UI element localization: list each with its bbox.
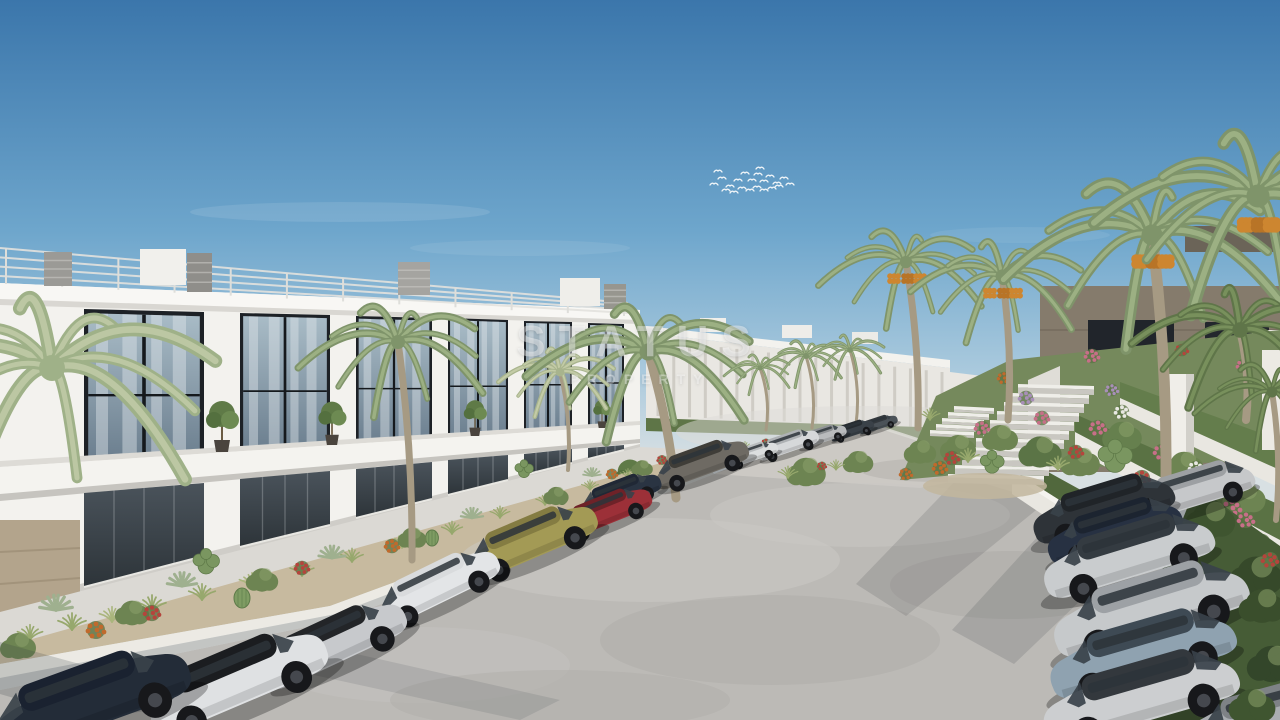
flower-bloom — [384, 545, 388, 549]
flower-bloom — [977, 431, 981, 435]
flower-bloom — [1154, 446, 1158, 450]
flower-bloom — [1120, 405, 1124, 409]
flower-bloom — [952, 460, 956, 464]
flower-bloom — [1194, 461, 1198, 465]
flower-bloom — [612, 476, 615, 479]
palm-crown — [1267, 387, 1278, 398]
flower-bloom — [910, 474, 913, 477]
flower-bloom — [1238, 508, 1243, 513]
tree-foliage — [206, 412, 222, 428]
flower-bloom — [1084, 355, 1088, 359]
flower-bloom — [1094, 352, 1098, 356]
bush-highlight — [1036, 436, 1053, 453]
flower-bloom — [1092, 431, 1096, 435]
flower-bloom — [1122, 414, 1126, 418]
flower-bloom — [1238, 514, 1242, 518]
flower-bloom — [157, 613, 161, 617]
flower-bloom — [614, 471, 617, 474]
flower-bloom — [1100, 423, 1104, 427]
flower-bloom — [99, 625, 104, 630]
bush-ball — [246, 575, 262, 591]
flower-bloom — [818, 463, 820, 465]
flower-bloom — [1034, 417, 1038, 421]
flower-bloom — [935, 471, 939, 475]
flower-bloom — [1247, 522, 1251, 526]
bush-highlight — [129, 601, 142, 614]
flower-bloom — [1248, 515, 1252, 519]
flower-bloom — [144, 607, 148, 611]
flower-bloom — [1261, 559, 1265, 563]
flower-bloom — [1089, 427, 1093, 431]
flower-bloom — [1018, 397, 1022, 401]
palm-crown — [1246, 184, 1269, 207]
flower-bloom — [1028, 394, 1032, 398]
palm-crown — [803, 353, 809, 359]
flower-bloom — [956, 458, 960, 462]
bush-ball — [904, 447, 920, 463]
prickly-pear-pad — [1108, 439, 1122, 453]
flower-bloom — [997, 377, 1000, 380]
flower-bloom — [1126, 412, 1130, 416]
curtain — [307, 318, 317, 443]
flower-bloom — [1037, 421, 1041, 425]
flower-bloom — [1111, 388, 1114, 391]
flower-bloom — [908, 470, 911, 473]
flower-bloom — [980, 421, 984, 425]
flower-bloom — [1092, 358, 1096, 362]
flower-bloom — [906, 476, 909, 479]
flower-bloom — [1153, 451, 1157, 455]
flower-bloom — [823, 463, 825, 465]
shape-rect — [560, 278, 600, 306]
bush-ball — [843, 457, 858, 472]
flower-bloom — [899, 473, 902, 476]
shape-ellipse — [600, 595, 940, 685]
flower-bloom — [1103, 428, 1107, 432]
flower-bloom — [396, 546, 400, 550]
flower-bloom — [1040, 411, 1044, 415]
flower-bloom — [1026, 400, 1030, 404]
flower-bloom — [940, 470, 944, 474]
flower-bloom — [951, 456, 955, 460]
flower-bloom — [662, 461, 665, 464]
flower-bloom — [762, 440, 764, 442]
flower-bloom — [900, 470, 903, 473]
flower-bloom — [387, 549, 391, 553]
flower-bloom — [944, 468, 948, 472]
flower-bloom — [1237, 361, 1241, 365]
flower-bloom — [825, 466, 827, 468]
flower-bloom — [94, 622, 99, 627]
date-fruit — [1165, 259, 1175, 269]
flower-bloom — [1262, 554, 1266, 558]
flower-bloom — [608, 476, 611, 479]
flower-bloom — [294, 567, 298, 571]
flower-bloom — [394, 542, 398, 546]
curtain — [454, 320, 460, 434]
flower-bloom — [661, 459, 664, 462]
date-fruit — [895, 278, 901, 284]
flower-bloom — [304, 564, 308, 568]
flower-bloom — [1186, 350, 1189, 353]
flower-bloom — [1182, 352, 1185, 355]
flower-bloom — [1024, 391, 1028, 395]
window — [240, 313, 330, 450]
flower-bloom — [1019, 393, 1023, 397]
bush-highlight — [917, 440, 930, 453]
flower-bloom — [1272, 555, 1276, 559]
bush-ball — [982, 432, 1000, 450]
flower-bloom — [300, 561, 304, 565]
flower-bloom — [1087, 359, 1091, 363]
bush-ball — [1018, 445, 1040, 467]
flower-bloom — [150, 605, 154, 609]
flower-bloom — [947, 461, 951, 465]
flower-bloom — [1264, 563, 1268, 567]
flower-bloom — [1091, 354, 1095, 358]
flower-bloom — [821, 462, 823, 464]
palm-crown — [847, 347, 853, 353]
curtain — [492, 322, 499, 432]
curtain — [249, 316, 258, 446]
curtain — [269, 317, 280, 445]
bush-highlight — [1248, 689, 1266, 707]
flower-bloom — [1085, 351, 1089, 355]
flower-bloom — [1096, 420, 1100, 424]
bush-highlight — [640, 460, 648, 468]
flower-bloom — [663, 457, 666, 460]
flower-bloom — [615, 474, 618, 477]
flower-bloom — [392, 548, 396, 552]
flower-bloom — [1003, 376, 1006, 379]
architectural-render: STATUS PROPERTY — [0, 0, 1280, 720]
flower-bloom — [1074, 445, 1078, 449]
flower-bloom — [1116, 390, 1119, 393]
flower-bloom — [391, 544, 395, 548]
flower-bloom — [611, 469, 614, 472]
flower-bloom — [1114, 411, 1118, 415]
flower-bloom — [95, 628, 100, 633]
flower-bloom — [902, 477, 905, 480]
flower-bloom — [1124, 408, 1128, 412]
flower-bloom — [151, 611, 155, 615]
flower-bloom — [1231, 506, 1236, 511]
flower-bloom — [302, 570, 306, 574]
flower-bloom — [656, 459, 659, 462]
flower-bloom — [1240, 523, 1244, 527]
palm-crown — [639, 343, 656, 360]
flower-bloom — [817, 465, 819, 467]
bush-highlight — [803, 458, 818, 473]
palm-crown — [757, 365, 762, 370]
flower-bloom — [933, 463, 937, 467]
bush-highlight — [1258, 589, 1276, 607]
flower-bloom — [1121, 410, 1125, 414]
flower-bloom — [1078, 448, 1082, 452]
bush-highlight — [15, 633, 29, 647]
shape-rect — [140, 249, 186, 285]
bush-highlight — [1119, 422, 1134, 437]
flower-bloom — [1275, 560, 1279, 564]
flower-bloom — [942, 464, 946, 468]
flower-bloom — [1189, 463, 1193, 467]
flower-bloom — [1021, 401, 1025, 405]
flower-bloom — [905, 472, 908, 475]
flower-bloom — [822, 467, 824, 469]
flower-bloom — [607, 470, 610, 473]
bush-highlight — [855, 451, 867, 463]
flower-bloom — [765, 439, 767, 441]
plant-pot — [325, 435, 339, 445]
flower-bloom — [1076, 454, 1080, 458]
tree-foliage — [464, 408, 475, 419]
flower-bloom — [661, 455, 664, 458]
flower-bloom — [1097, 426, 1101, 430]
tree-foliage — [593, 406, 602, 415]
palm-crown — [391, 335, 405, 349]
prickly-pear-pad — [520, 460, 528, 468]
flower-bloom — [1251, 520, 1255, 524]
flower-bloom — [1245, 518, 1249, 522]
plant-barrel — [234, 588, 250, 608]
shape-ellipse — [923, 473, 1047, 499]
flower-bloom — [1069, 447, 1073, 451]
flower-bloom — [944, 457, 948, 461]
prickly-pear-pad — [201, 549, 212, 560]
palm-crown — [900, 256, 912, 268]
flower-bloom — [606, 473, 609, 476]
bush-ball — [115, 607, 132, 624]
flower-bloom — [1112, 392, 1115, 395]
flower-bloom — [975, 423, 979, 427]
flower-bloom — [146, 616, 150, 620]
render-scene — [0, 0, 1280, 720]
flower-bloom — [1156, 455, 1160, 459]
flower-bloom — [981, 426, 985, 430]
flower-bloom — [1035, 413, 1039, 417]
flower-bloom — [998, 374, 1001, 377]
flower-bloom — [1237, 519, 1241, 523]
tree-foliage — [474, 407, 487, 420]
flower-bloom — [945, 453, 949, 457]
flower-bloom — [1115, 407, 1119, 411]
flower-bloom — [657, 456, 660, 459]
flower-bloom — [939, 466, 943, 470]
flower-bloom — [1090, 422, 1094, 426]
shape-ellipse — [190, 202, 490, 222]
bush-highlight — [554, 487, 564, 497]
flower-bloom — [819, 468, 821, 470]
flower-bloom — [1068, 451, 1072, 455]
flower-bloom — [385, 541, 389, 545]
palm-crown — [1232, 322, 1247, 337]
flower-bloom — [153, 615, 157, 619]
flower-bloom — [1090, 349, 1094, 353]
flower-bloom — [295, 563, 299, 567]
tree-foliage — [331, 410, 346, 425]
flower-bloom — [301, 566, 305, 570]
flower-bloom — [1046, 418, 1050, 422]
flower-bloom — [86, 629, 91, 634]
flower-bloom — [611, 473, 614, 476]
palm-crown — [556, 368, 565, 377]
flower-bloom — [1000, 381, 1003, 384]
flower-bloom — [984, 424, 988, 428]
bush-highlight — [997, 425, 1011, 439]
bush-highlight — [955, 435, 969, 449]
flower-bloom — [143, 612, 147, 616]
flower-bloom — [88, 624, 93, 629]
flower-bloom — [658, 462, 661, 465]
flower-bloom — [297, 571, 301, 575]
plant-pot — [598, 421, 607, 428]
flower-bloom — [390, 539, 394, 543]
tree-foliage — [221, 411, 239, 429]
flower-bloom — [1025, 396, 1029, 400]
flower-bloom — [1269, 558, 1273, 562]
bush-ball — [1247, 656, 1272, 681]
flower-bloom — [1268, 552, 1272, 556]
flower-bloom — [1096, 356, 1100, 360]
bush-ball — [631, 464, 642, 475]
flower-bloom — [1041, 416, 1045, 420]
date-fruit — [1017, 293, 1023, 299]
flower-bloom — [1002, 372, 1005, 375]
flower-bloom — [154, 608, 158, 612]
flower-bloom — [1044, 414, 1048, 418]
plant-pot — [469, 428, 480, 436]
flower-bloom — [90, 634, 95, 639]
flower-bloom — [1110, 384, 1113, 387]
flower-bloom — [102, 630, 107, 635]
bush-highlight — [259, 568, 272, 581]
flower-bloom — [1117, 415, 1121, 419]
flower-bloom — [821, 465, 823, 467]
flower-bloom — [1105, 389, 1108, 392]
flower-bloom — [1106, 386, 1109, 389]
prickly-pear-pad — [987, 450, 997, 460]
flower-bloom — [1075, 450, 1079, 454]
flower-bloom — [97, 633, 102, 638]
flower-bloom — [904, 468, 907, 471]
tree-foliage — [318, 411, 332, 425]
flower-bloom — [1271, 562, 1275, 566]
flower-bloom — [982, 430, 986, 434]
flower-bloom — [932, 467, 936, 471]
flower-bloom — [1071, 455, 1075, 459]
flower-bloom — [1244, 512, 1248, 516]
flower-bloom — [974, 427, 978, 431]
plant-pot — [214, 440, 230, 452]
shape-rect — [782, 325, 812, 338]
flower-bloom — [1108, 393, 1111, 396]
palm-crown — [39, 355, 65, 381]
curtain — [290, 317, 298, 443]
bush-ball — [543, 492, 556, 505]
flower-bloom — [1114, 386, 1117, 389]
shape-ellipse — [410, 240, 630, 256]
date-fruit — [895, 273, 901, 279]
flower-bloom — [1042, 420, 1046, 424]
flower-bloom — [1099, 430, 1103, 434]
flower-bloom — [1030, 398, 1034, 402]
flower-bloom — [306, 568, 310, 572]
date-fruit — [991, 293, 997, 299]
flower-bloom — [938, 461, 942, 465]
bush-ball — [1239, 598, 1262, 621]
flower-bloom — [1140, 470, 1144, 474]
plant-barrel — [426, 530, 439, 546]
flower-bloom — [986, 428, 990, 432]
flower-bloom — [950, 451, 954, 455]
flower-bloom — [1080, 452, 1084, 456]
